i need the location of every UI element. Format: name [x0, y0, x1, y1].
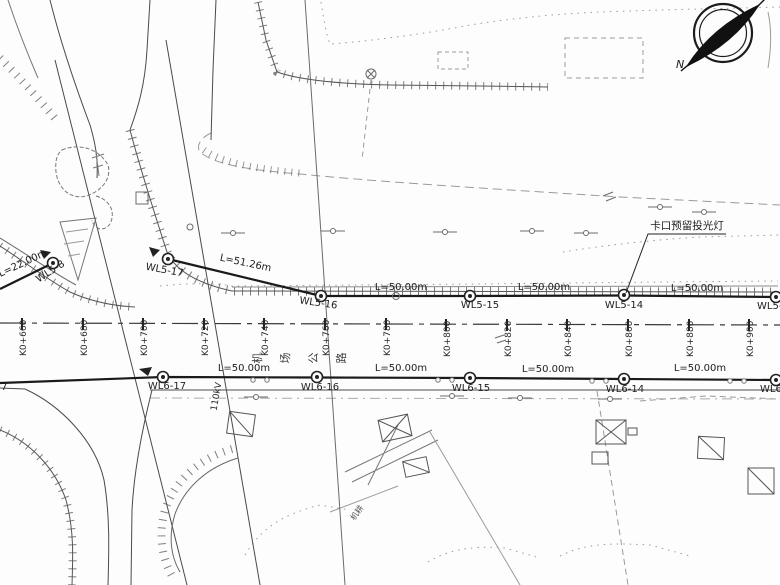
station-label: K0+680: [80, 319, 90, 356]
buildings: [227, 411, 774, 494]
lamp-label: WL5-16: [299, 295, 338, 311]
arrow-icon: [149, 247, 160, 257]
survey-mark-icon: [440, 394, 464, 399]
segment-length: L=50.00m: [671, 283, 723, 294]
site-plan-svg: K0+660 K0+680 K0+700 K0+720 K0+740 K0+76…: [0, 0, 780, 585]
station-label: K0+760: [322, 319, 332, 356]
lamp-label: WL5-15: [461, 300, 499, 311]
survey-mark-icon: [321, 229, 345, 234]
annotation-text: 卡口预留投光灯: [650, 219, 724, 232]
survey-mark-icon: [520, 229, 544, 234]
lamp-label: WL5-14: [605, 300, 643, 311]
station-label: K0+660: [19, 319, 29, 356]
survey-mark-icon: [244, 395, 268, 400]
survey-mark-icon: [692, 210, 716, 215]
station-label: K0+900: [746, 320, 756, 357]
building-outline: [403, 457, 430, 478]
lighting-plan-drawing: K0+660 K0+680 K0+700 K0+720 K0+740 K0+76…: [0, 0, 780, 585]
lamp-label: WL6-15: [452, 383, 490, 394]
segment-length: L=50.00m: [522, 364, 574, 375]
building-outline: [628, 428, 637, 435]
field-note: 机耕: [348, 503, 365, 522]
building-outline: [378, 414, 412, 442]
cable-wl6: [0, 377, 780, 383]
segment-length-labels: L=22.00m L=51.26m L=50.00m L=50.00m L=50…: [0, 248, 726, 375]
building-outline: [592, 452, 608, 464]
north-arrow: N: [676, 0, 766, 71]
hatched-bands: [0, 2, 778, 585]
north-label: N: [676, 58, 684, 71]
segment-length: L=50.00m: [674, 363, 726, 374]
survey-mark-icon: [433, 230, 457, 235]
building-outline: [748, 468, 774, 494]
survey-mark-icon: [648, 205, 672, 210]
station-label: K0+860: [625, 320, 635, 357]
segment-length: L=50.00m: [375, 363, 427, 374]
station-label: K0+720: [201, 319, 211, 356]
station-label: K0+800: [443, 320, 453, 357]
utility-circle-icon: [366, 69, 376, 79]
station-label: K0+820: [504, 320, 514, 357]
lamp-label-partial: 7: [1, 382, 7, 393]
power-line-label: 110kV: [210, 381, 225, 412]
station-label: K0+840: [564, 320, 574, 357]
arrow-icon: [139, 367, 152, 376]
lamp-label: WL6-13: [760, 384, 780, 395]
building-outline: [596, 420, 626, 444]
lamp-symbol: [163, 254, 174, 265]
segment-length: L=50.00m: [218, 363, 270, 374]
segment-length: L=50.00m: [375, 282, 427, 293]
road-name-char: 公: [307, 353, 320, 364]
segment-length: L=50.00m: [518, 282, 570, 293]
station-label: K0+740: [261, 319, 271, 356]
segment-length: L=51.26m: [219, 253, 272, 275]
lamp-symbol: [312, 372, 323, 383]
lamp-symbol: [619, 374, 630, 385]
lamp-label: WL6-16: [301, 382, 339, 393]
survey-mark-icon: [221, 231, 245, 236]
small-circle-icon: [187, 224, 193, 230]
road-name-char: 场: [278, 353, 292, 364]
lamp-symbol: [619, 290, 630, 301]
small-box-icon: [136, 192, 148, 204]
station-label: K0+700: [140, 319, 150, 356]
lamp-label: WL6-14: [606, 384, 644, 395]
road-name-char: 路: [335, 353, 348, 364]
station-label: K0+880: [686, 320, 696, 357]
road-name-char: 机: [250, 353, 264, 364]
lamp-label: WL5-13: [757, 301, 780, 312]
lamp-label: WL6-17: [148, 381, 186, 392]
station-label: K0+780: [383, 319, 393, 356]
survey-mark-icon: [598, 397, 622, 402]
survey-mark-icon: [508, 396, 532, 401]
power-line-1: [55, 60, 187, 585]
lamp-symbol: [465, 373, 476, 384]
survey-mark-icon: [574, 231, 598, 236]
building-outline: [697, 436, 724, 459]
